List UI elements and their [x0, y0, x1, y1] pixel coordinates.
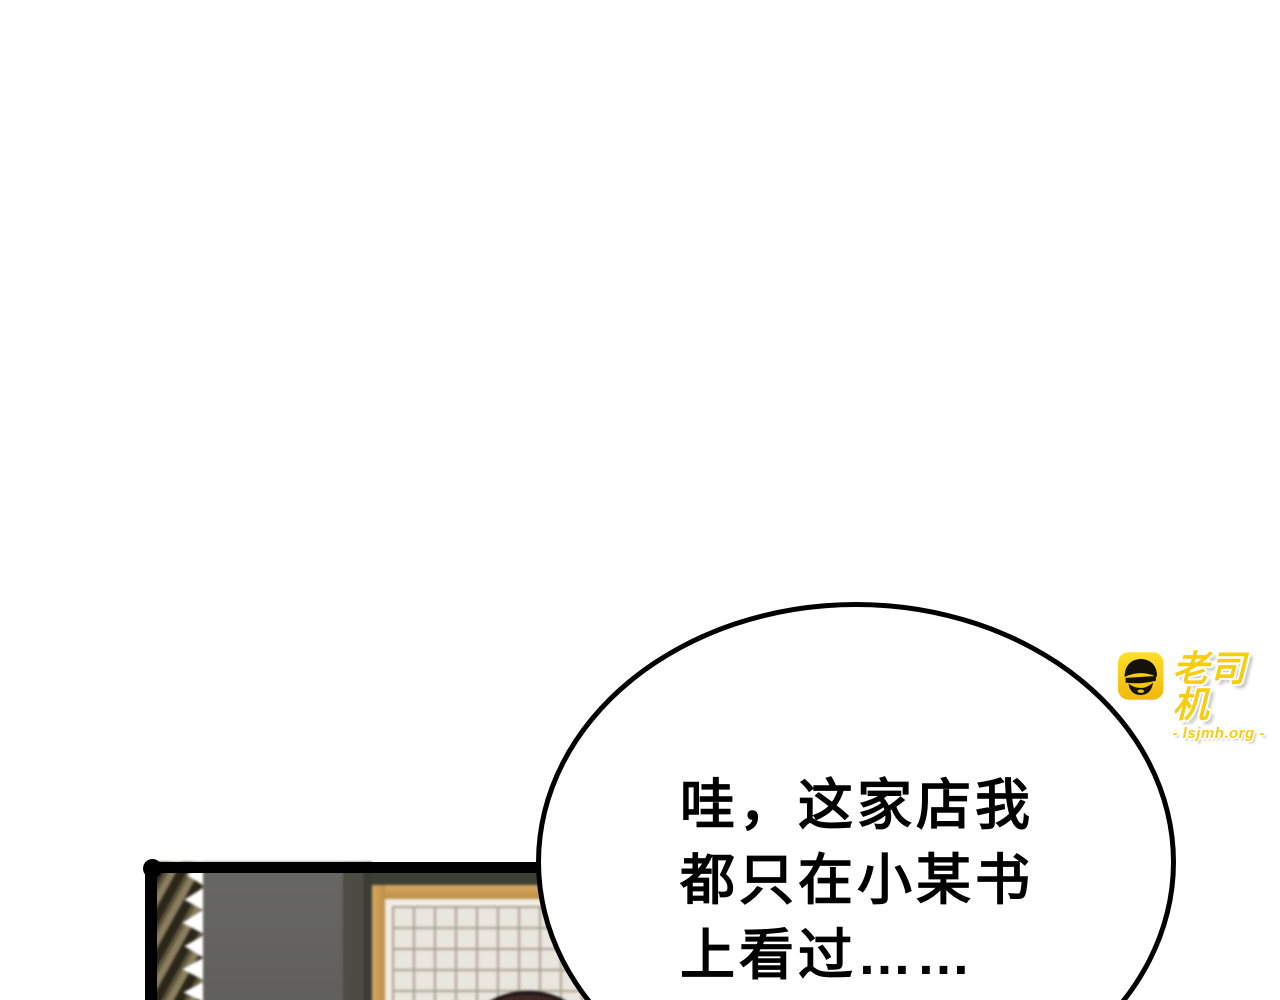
roof-tiles [151, 862, 205, 1000]
watermark-site-name: 老司机 [1173, 651, 1280, 723]
panel-border-left [145, 862, 157, 1000]
pillar [343, 862, 372, 1000]
panel-corner-dot [143, 859, 162, 878]
bubble-line-3: 上看过…… [680, 918, 1100, 993]
window-frame-vertical [372, 885, 385, 1000]
watermark: 老司机 - lsjmh.org - [1118, 651, 1280, 742]
speech-bubble-text: 哇，这家店我 都只在小某书 上看过…… [680, 768, 1100, 993]
watermark-site-url: - lsjmh.org - [1173, 725, 1280, 742]
wall [203, 862, 343, 1000]
comic-page: 哇，这家店我 都只在小某书 上看过…… 老司机 - lsjmh.org - [0, 0, 1280, 1000]
bubble-line-2: 都只在小某书 [680, 843, 1100, 918]
watermark-texts: 老司机 - lsjmh.org - [1173, 651, 1280, 742]
bubble-line-1: 哇，这家店我 [680, 768, 1100, 843]
driver-face-icon [1118, 651, 1164, 701]
